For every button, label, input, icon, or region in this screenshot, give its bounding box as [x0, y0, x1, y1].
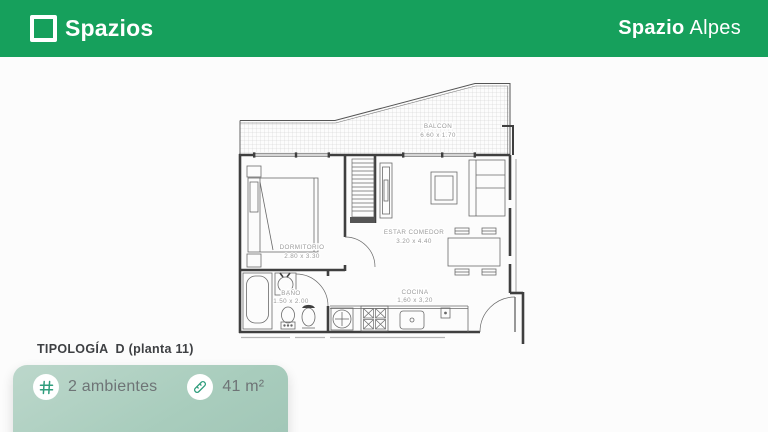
project-title-bold: Spazio: [618, 17, 684, 39]
app-header: Spazios SpazioAlpes: [0, 0, 768, 57]
area-value: 41 m²: [222, 378, 264, 396]
dining-set: [448, 228, 500, 275]
area-item: 41 m²: [187, 374, 264, 400]
label-balcon-dims: 6.60 x 1.70: [420, 132, 456, 139]
brand-name: Spazios: [65, 15, 153, 42]
chairs: [455, 228, 496, 275]
bedroom-door: [345, 237, 375, 267]
label-estar-dims: 3.20 x 4.40: [396, 238, 432, 245]
project-title-light: Alpes: [689, 17, 741, 39]
floor-plan-svg: BALCON 6.60 x 1.70 DORMITORIO 2.80 x 3.3…: [228, 60, 540, 344]
label-cocina-dims: 1,60 x 3,20: [397, 297, 433, 304]
project-title: SpazioAlpes: [618, 17, 741, 40]
label-dormitorio-dims: 2.80 x 3.30: [284, 253, 320, 260]
label-cocina: COCINA: [402, 289, 429, 296]
kitchen-fixtures: [330, 306, 468, 332]
unit-info-card: 2 ambientes 41 m²: [13, 365, 288, 432]
staircase: [350, 159, 375, 223]
label-dormitorio: DORMITORIO: [280, 244, 325, 251]
entrance-door: [480, 297, 515, 332]
ambientes-value: 2 ambientes: [68, 378, 157, 396]
grid-hash-icon: [33, 374, 59, 400]
label-balcon: BALCON: [424, 123, 452, 130]
ambientes-item: 2 ambientes: [33, 374, 157, 400]
balcony: [240, 82, 510, 156]
spazios-logo-icon: [30, 15, 57, 42]
bed: [247, 166, 318, 267]
typology-title: TIPOLOGÍA D (planta 11): [37, 342, 194, 356]
ruler-icon: [187, 374, 213, 400]
label-bano: BAÑO: [281, 288, 300, 297]
label-estar: ESTAR COMEDOR: [384, 229, 444, 236]
living-furniture: [380, 160, 505, 218]
label-bano-dims: 1.50 x 2.00: [273, 298, 309, 305]
floor-plan: BALCON 6.60 x 1.70 DORMITORIO 2.80 x 3.3…: [228, 60, 540, 344]
